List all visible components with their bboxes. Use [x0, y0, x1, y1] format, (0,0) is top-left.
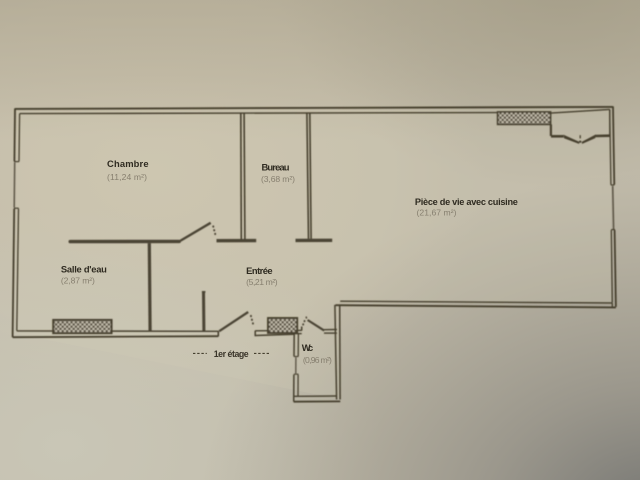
svg-text:(11,24 m²): (11,24 m²) [107, 172, 147, 182]
svg-text:(0,96 m²): (0,96 m²) [303, 355, 332, 365]
svg-text:1er étage: 1er étage [214, 349, 249, 359]
svg-text:Chambre: Chambre [107, 158, 149, 169]
svg-text:Wc: Wc [302, 342, 314, 353]
svg-text:(3,68 m²): (3,68 m²) [261, 174, 295, 184]
svg-text:Salle d'eau: Salle d'eau [61, 263, 107, 274]
svg-text:(21,67 m²): (21,67 m²) [417, 207, 457, 217]
svg-text:(5,21 m²): (5,21 m²) [246, 277, 278, 287]
svg-text:Bureau: Bureau [262, 161, 290, 172]
svg-text:(2,87 m²): (2,87 m²) [61, 275, 95, 285]
svg-text:Entrée: Entrée [246, 265, 273, 276]
svg-text:Pièce de vie avec cuisine: Pièce de vie avec cuisine [415, 197, 518, 207]
